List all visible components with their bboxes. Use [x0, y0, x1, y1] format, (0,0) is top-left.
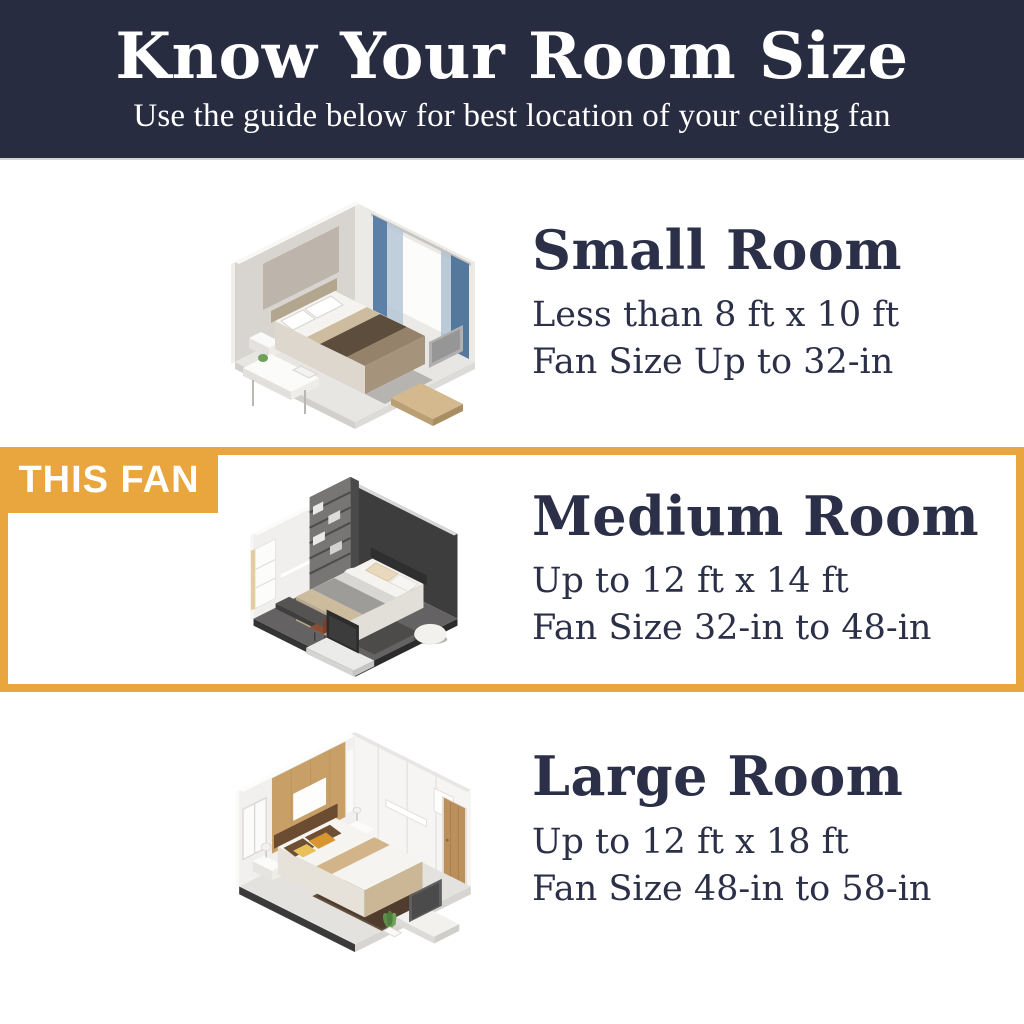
small-room-dimensions: Less than 8 ft x 10 ft [532, 292, 902, 339]
small-room-fan-size: Fan Size Up to 32-in [532, 339, 902, 386]
large-room-illustration [190, 705, 520, 956]
medium-bedroom-isometric-image [228, 459, 483, 680]
medium-room-title: Medium Room [532, 487, 979, 546]
small-room-title: Small Room [532, 221, 902, 280]
small-room-illustration [190, 174, 520, 434]
section-large-room: Large Room Up to 12 ft x 18 ft Fan Size … [0, 700, 1024, 960]
door [442, 795, 467, 886]
this-fan-badge: THIS FAN [0, 447, 218, 513]
medium-room-dimensions: Up to 12 ft x 14 ft [532, 558, 979, 605]
highlighted-section-box: THIS FAN [0, 447, 1024, 692]
window [347, 748, 353, 813]
large-room-fan-size: Fan Size 48-in to 58-in [532, 866, 931, 913]
section-small-room: Small Room Less than 8 ft x 10 ft Fan Si… [0, 160, 1024, 447]
medium-room-illustration [190, 459, 520, 680]
large-room-title: Large Room [532, 747, 931, 806]
large-bedroom-isometric-image [210, 705, 500, 956]
this-fan-label: THIS FAN [18, 459, 199, 502]
pouf [414, 624, 446, 644]
medium-room-fan-size: Fan Size 32-in to 48-in [532, 605, 979, 652]
large-room-dimensions: Up to 12 ft x 18 ft [532, 819, 931, 866]
header-banner: Know Your Room Size Use the guide below … [0, 0, 1024, 160]
small-bedroom-isometric-image [205, 174, 505, 434]
page-title: Know Your Room Size [115, 23, 908, 90]
page-subtitle: Use the guide below for best location of… [133, 98, 890, 135]
wardrobe [250, 539, 275, 610]
